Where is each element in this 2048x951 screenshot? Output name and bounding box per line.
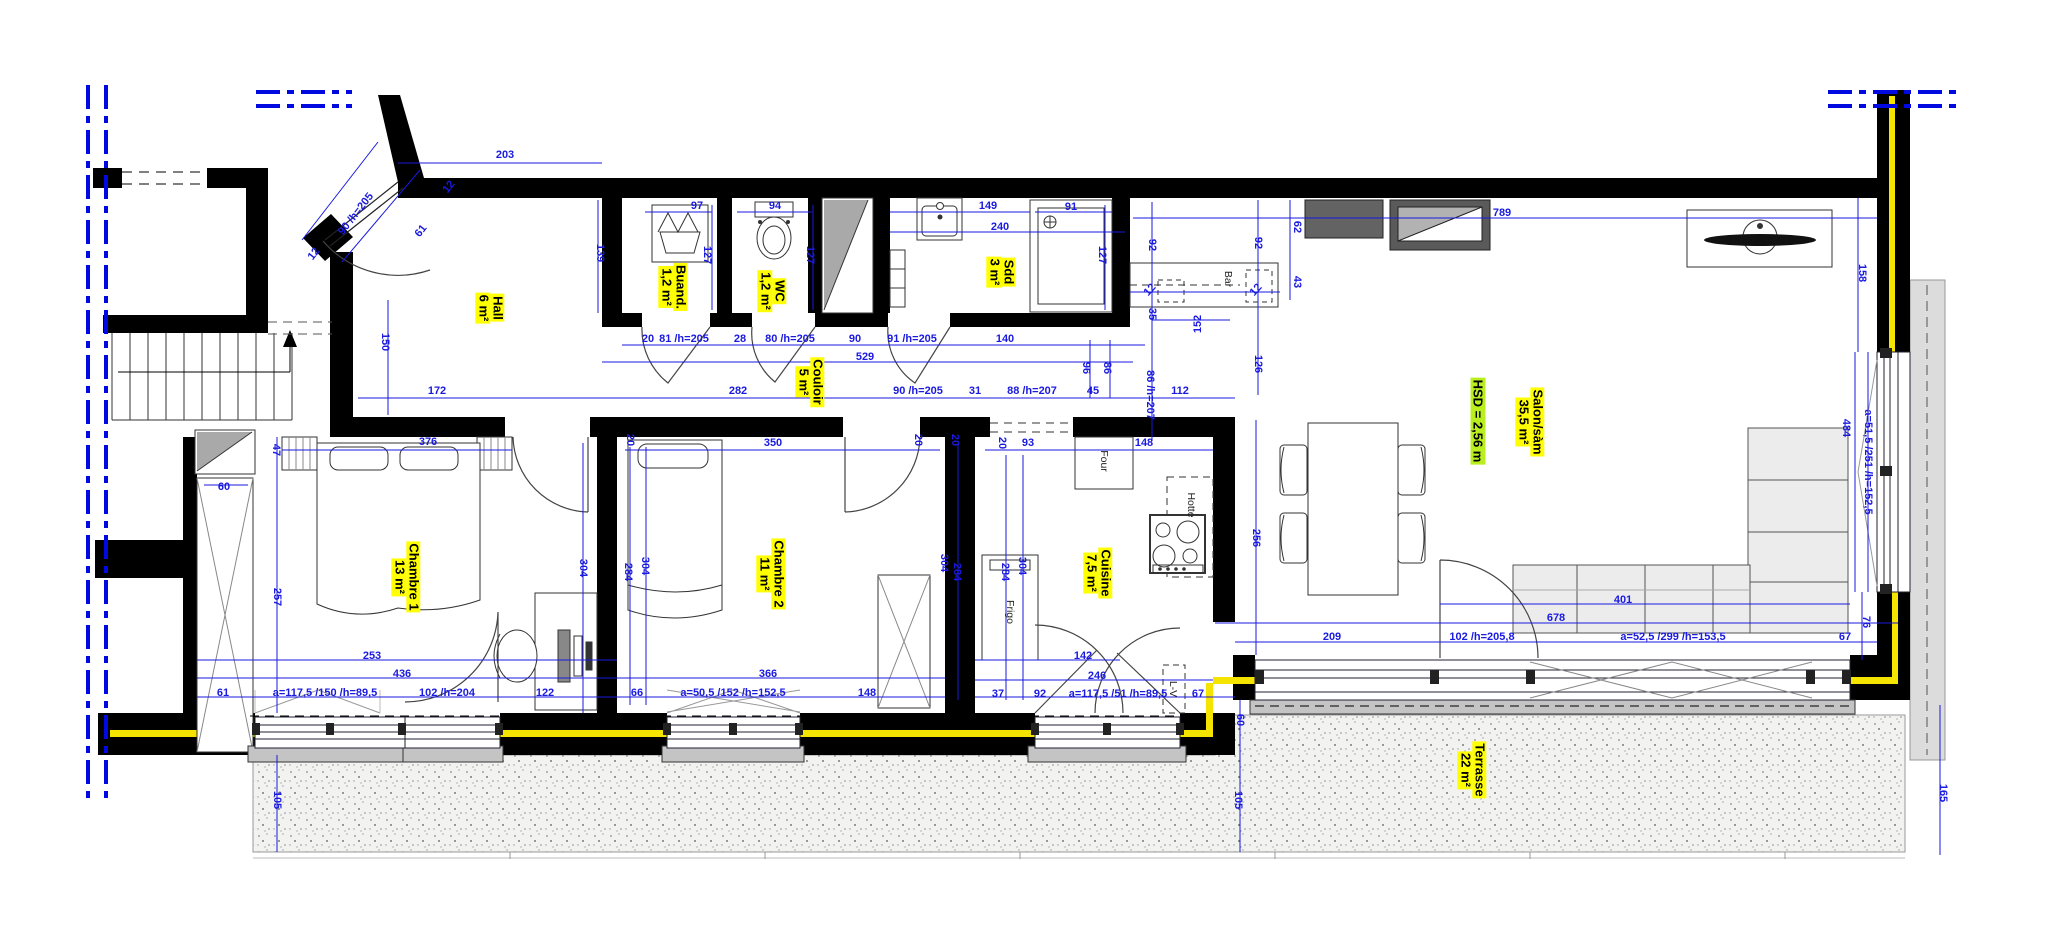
- right-ledge: [1910, 280, 1945, 760]
- floor-plan: Hall 6 m² Buand. 1,2 m² WC 1,2 m² Couloi…: [0, 0, 2048, 951]
- tv-unit: [1687, 210, 1832, 267]
- bedroom1-furniture: [197, 437, 597, 752]
- dining-set: [1280, 423, 1425, 595]
- right-window: [1858, 348, 1910, 594]
- sofa: [1513, 428, 1848, 633]
- staircase: [112, 172, 332, 420]
- wall-units: [1305, 200, 1490, 250]
- plan-linework: [0, 0, 2048, 951]
- bedroom2-furniture: [628, 440, 930, 708]
- pass-through-opening: [990, 423, 1073, 432]
- salon-windows: [1250, 660, 1855, 714]
- windows: [248, 690, 1186, 762]
